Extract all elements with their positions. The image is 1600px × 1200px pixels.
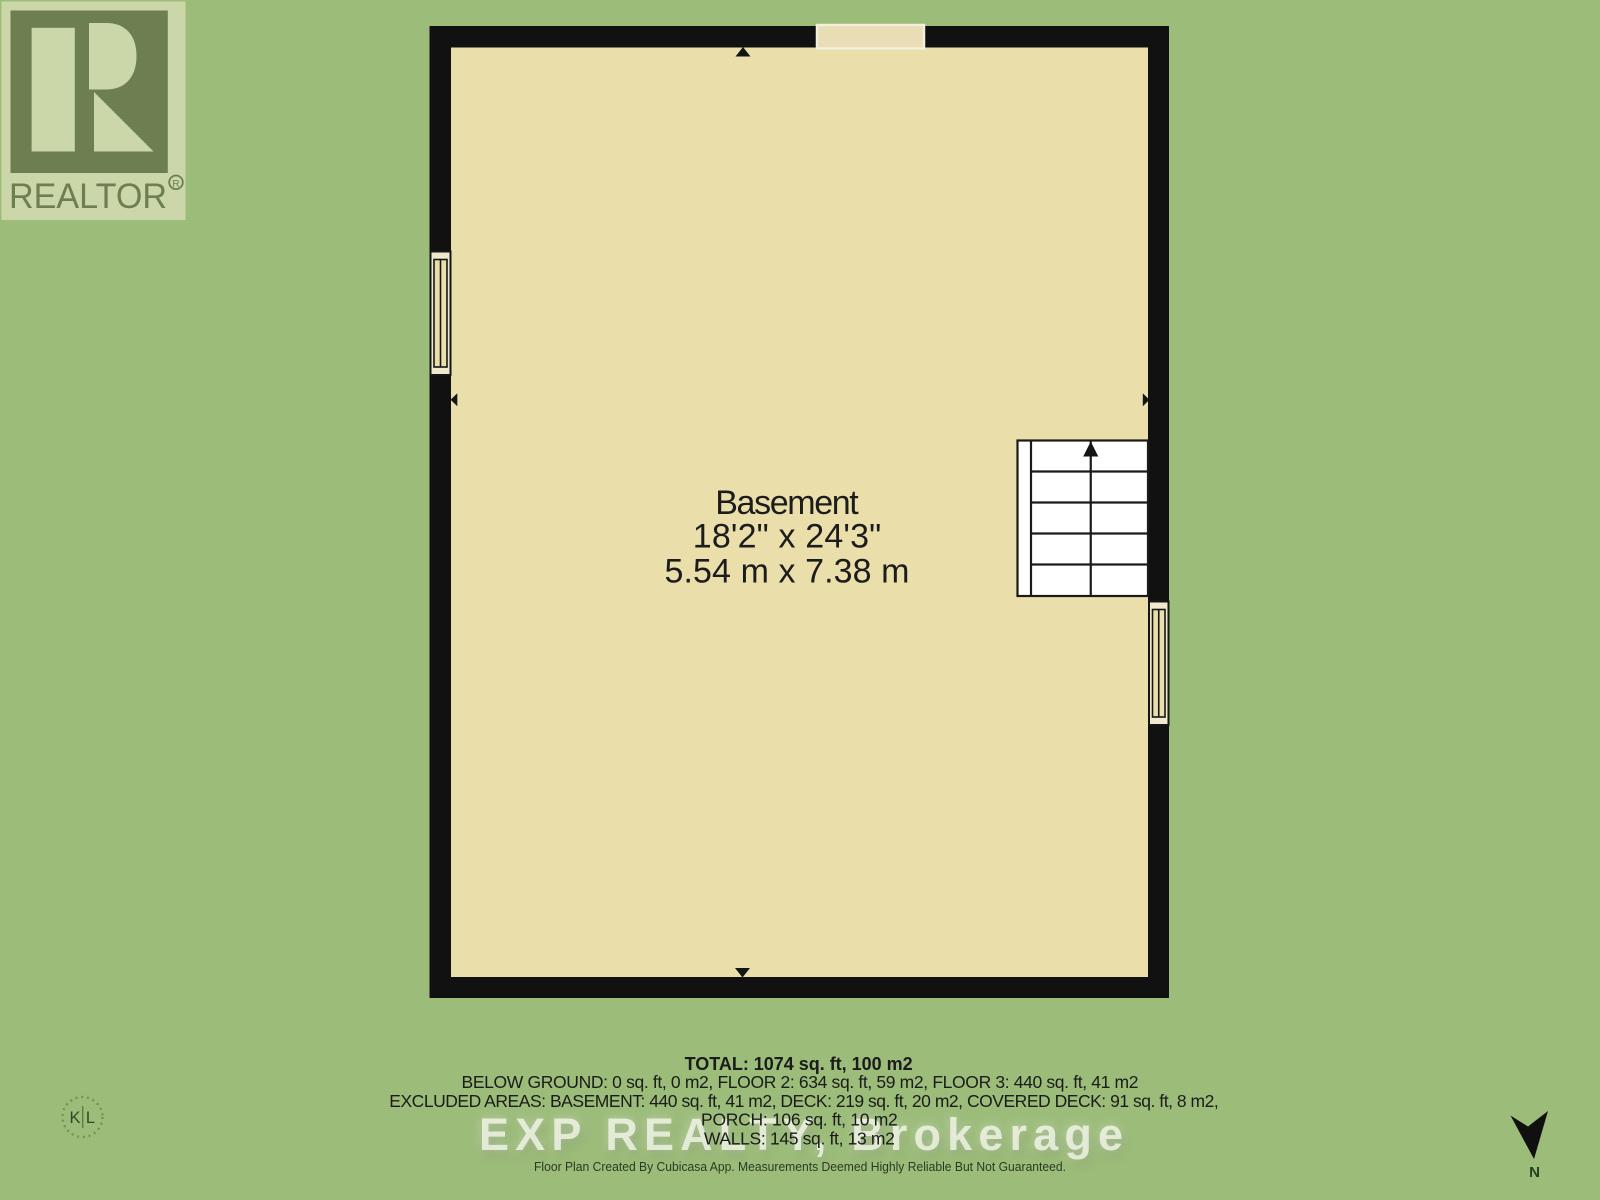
svg-text:N: N xyxy=(1529,1164,1540,1181)
svg-text:BELOW GROUND: 0 sq. ft, 0 m2,: BELOW GROUND: 0 sq. ft, 0 m2, FLOOR 2: 6… xyxy=(462,1072,1139,1092)
svg-text:EXCLUDED AREAS: BASEMENT: 440: EXCLUDED AREAS: BASEMENT: 440 sq. ft, 41… xyxy=(389,1091,1219,1111)
svg-text:R: R xyxy=(172,179,179,190)
svg-text:PORCH: 106 sq. ft, 10 m2: PORCH: 106 sq. ft, 10 m2 xyxy=(701,1109,898,1129)
svg-text:5.54 m x 7.38 m: 5.54 m x 7.38 m xyxy=(665,553,910,591)
svg-text:REALTOR: REALTOR xyxy=(9,177,167,216)
svg-text:TOTAL: 1074 sq. ft, 100 m2: TOTAL: 1074 sq. ft, 100 m2 xyxy=(685,1054,913,1074)
svg-text:18'2" x 24'3": 18'2" x 24'3" xyxy=(693,518,882,556)
svg-text:Floor Plan Created By Cubicasa: Floor Plan Created By Cubicasa App. Meas… xyxy=(534,1160,1066,1174)
svg-text:WALLS: 145 sq. ft, 13 m2: WALLS: 145 sq. ft, 13 m2 xyxy=(704,1129,895,1149)
svg-text:K: K xyxy=(69,1109,80,1127)
svg-text:L: L xyxy=(86,1109,95,1127)
svg-text:Basement: Basement xyxy=(715,484,859,522)
